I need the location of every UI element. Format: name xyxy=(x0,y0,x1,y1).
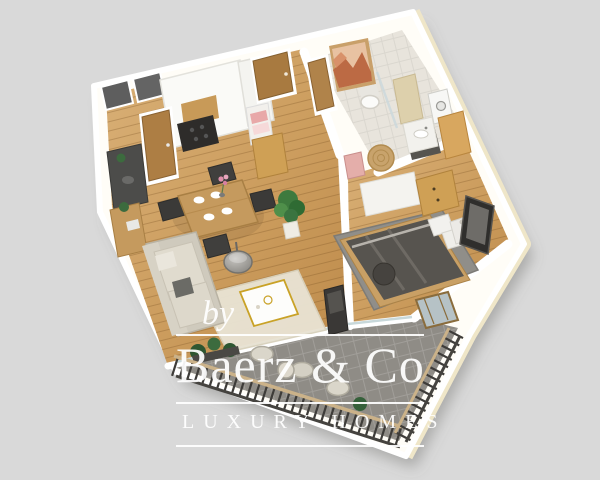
round-cushion xyxy=(373,263,395,285)
hall-cabinet xyxy=(252,133,288,179)
kitchen-counter xyxy=(107,144,148,210)
toilet xyxy=(358,84,380,109)
bathroom-artwork xyxy=(329,38,376,92)
watermark: by Baerz & Co LUXURY HOMES xyxy=(176,294,424,447)
brand-tagline: LUXURY HOMES xyxy=(176,409,424,435)
watermark-prefix: by xyxy=(176,294,424,334)
plate xyxy=(222,208,233,215)
plate xyxy=(204,214,215,221)
laundry-basket xyxy=(344,152,365,179)
brand-name: Baerz & Co xyxy=(176,337,424,393)
watermark-rule-top xyxy=(176,334,424,336)
watermark-rule-bottom xyxy=(176,445,424,447)
screenshot-canvas: by Baerz & Co LUXURY HOMES xyxy=(0,0,600,480)
plate xyxy=(194,197,205,204)
jute-rug xyxy=(368,145,394,171)
watermark-rule-middle xyxy=(176,402,424,404)
wall-picture xyxy=(460,196,494,254)
entry-door xyxy=(250,48,297,104)
